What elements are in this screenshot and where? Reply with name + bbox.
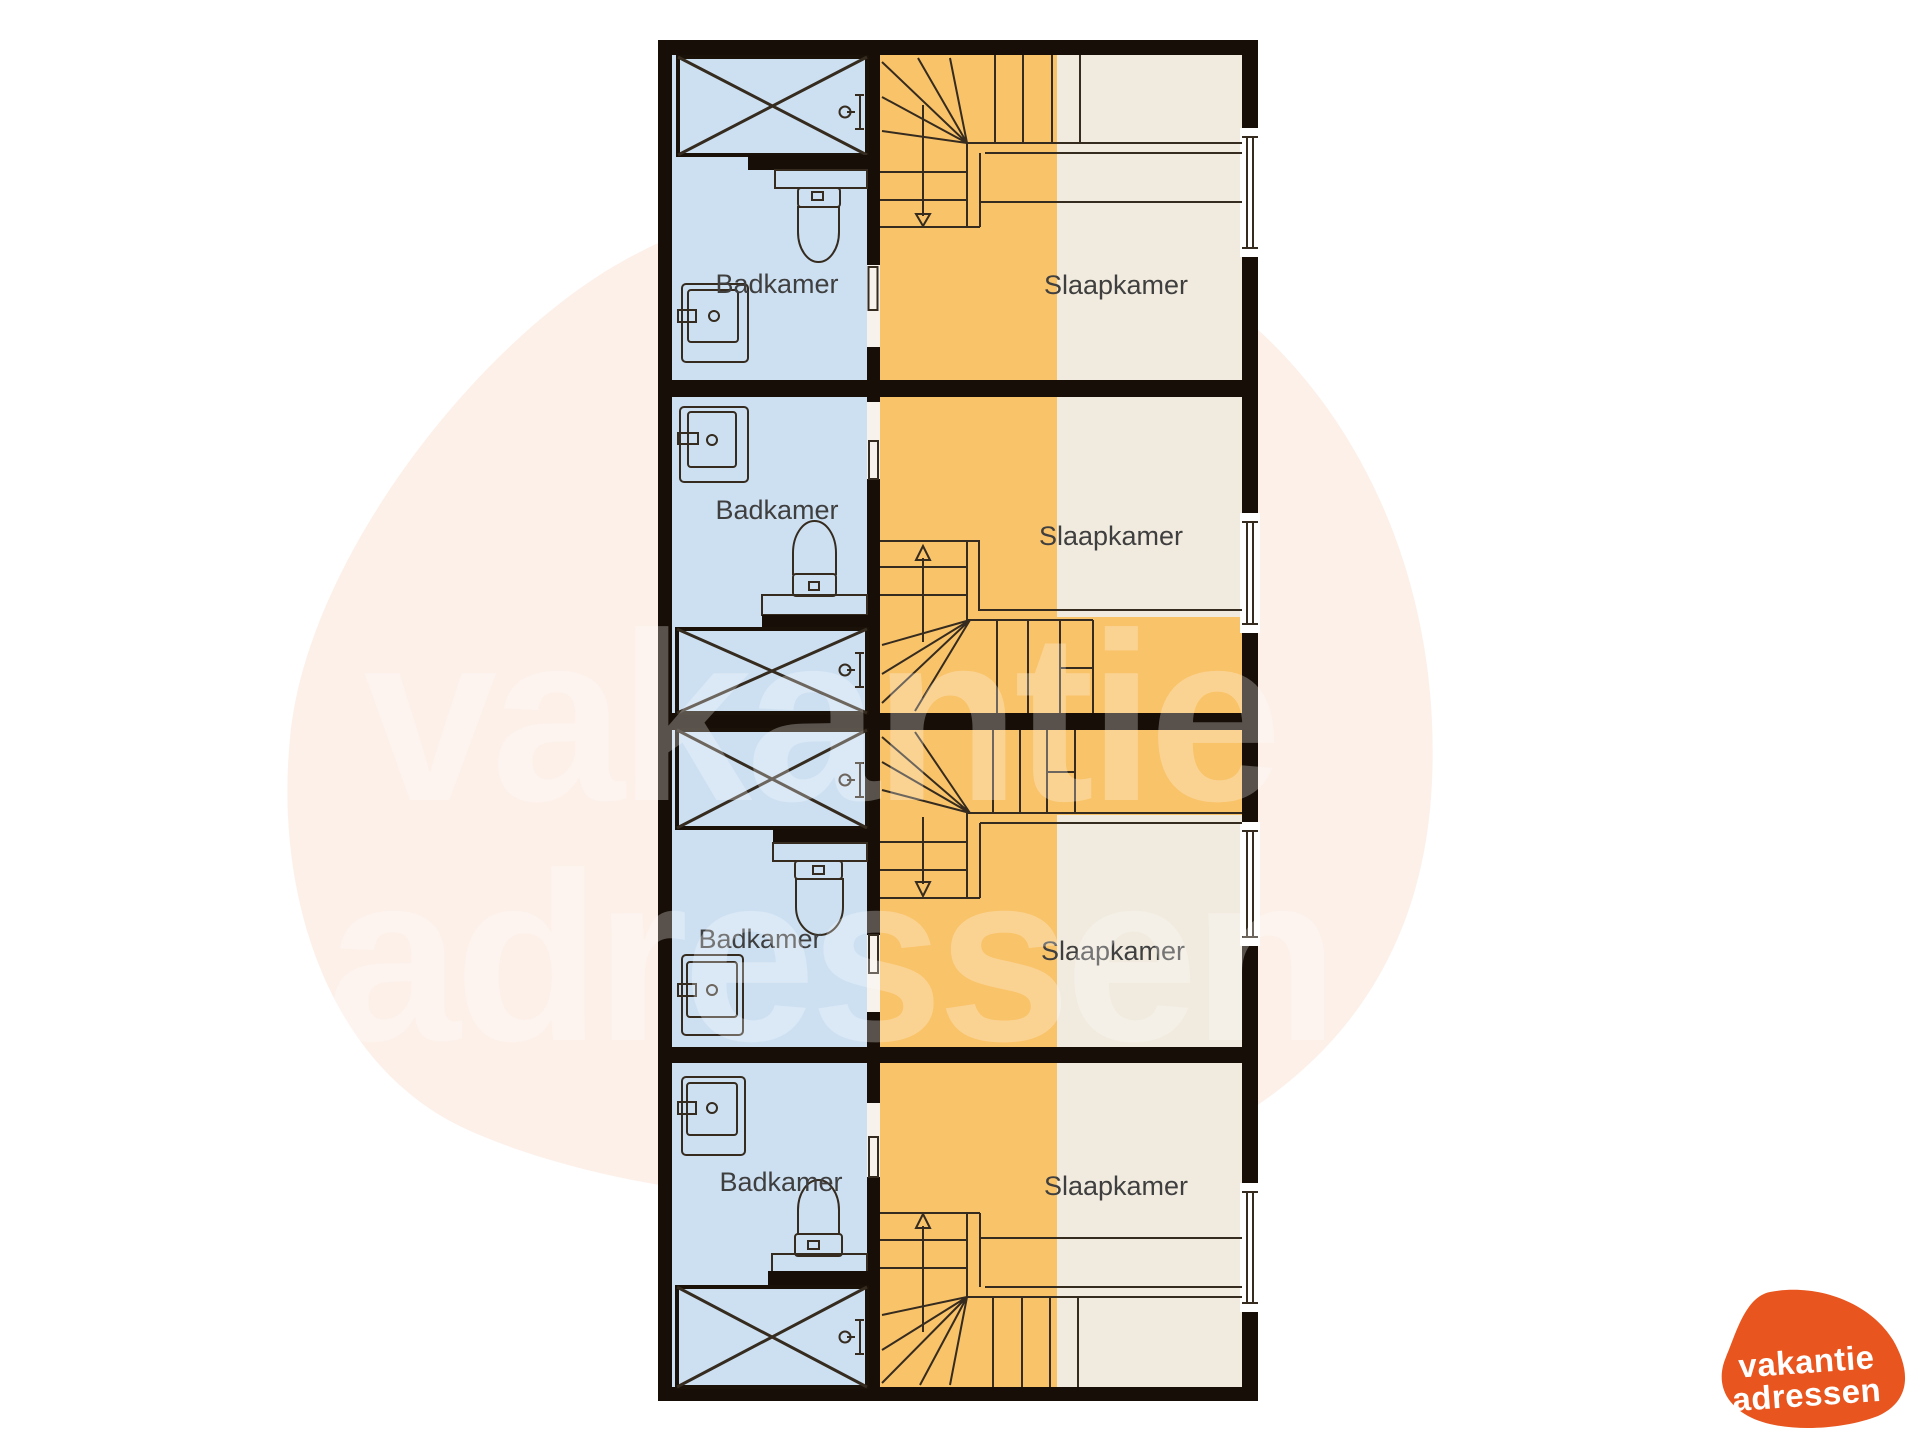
- bedroom-2-label: Slaapkamer: [1039, 521, 1183, 551]
- bedroom-4-floor-orange: [880, 1063, 1057, 1387]
- wall-stub-unit-1: [748, 155, 880, 170]
- wall-stub-unit-4: [768, 1271, 880, 1285]
- bedroom-1-floor-cream: [1057, 55, 1242, 380]
- floorplan-drawing: Badkamer Slaapkamer Badkamer Slaapkamer …: [0, 0, 1920, 1440]
- window-unit-4: [1240, 1183, 1260, 1312]
- watermark-line-1: vakantie: [364, 583, 1277, 851]
- bedroom-1-label: Slaapkamer: [1044, 270, 1188, 300]
- bedroom-1-floor-orange: [880, 55, 1057, 380]
- door-opening-unit-2: [867, 402, 880, 479]
- watermark-line-2: adressen: [327, 823, 1333, 1091]
- bedroom-4-label: Slaapkamer: [1044, 1171, 1188, 1201]
- bathroom-1-label: Badkamer: [715, 269, 838, 299]
- bathroom-4-label: Badkamer: [719, 1167, 842, 1197]
- door-opening-unit-1: [867, 265, 880, 347]
- door-opening-unit-4: [867, 1103, 880, 1177]
- logo: vakantie adressen: [1722, 1290, 1905, 1428]
- bedroom-4-floor-cream: [1057, 1063, 1242, 1387]
- window-unit-1: [1240, 128, 1260, 257]
- watermark: vakantie adressen: [327, 583, 1333, 1091]
- bathroom-2-label: Badkamer: [715, 495, 838, 525]
- floorplan-page: Badkamer Slaapkamer Badkamer Slaapkamer …: [0, 0, 1920, 1440]
